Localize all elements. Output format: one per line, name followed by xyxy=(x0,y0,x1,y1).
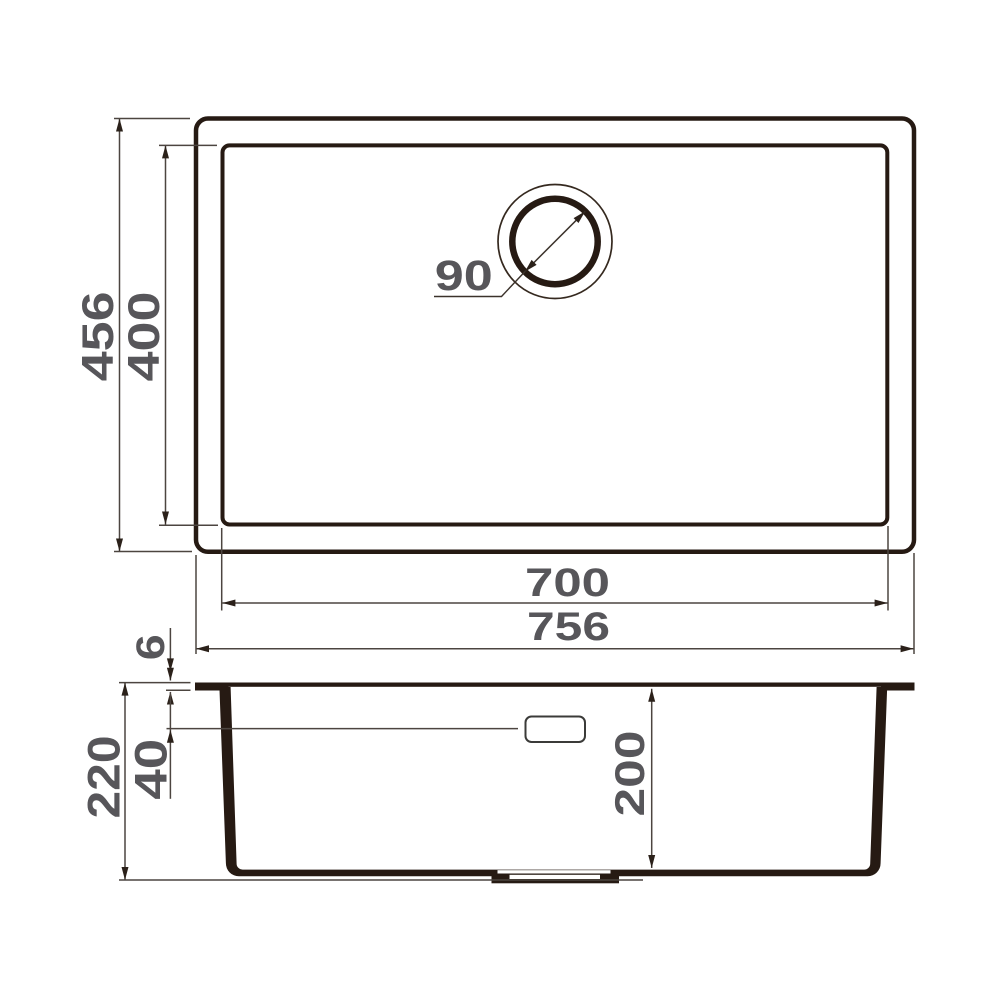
svg-text:220: 220 xyxy=(78,736,129,819)
svg-text:756: 756 xyxy=(527,605,610,649)
svg-text:700: 700 xyxy=(525,561,610,605)
svg-text:456: 456 xyxy=(74,291,123,381)
svg-text:200: 200 xyxy=(606,731,653,817)
svg-text:90: 90 xyxy=(435,252,493,300)
svg-text:40: 40 xyxy=(126,739,177,800)
svg-text:6: 6 xyxy=(129,634,173,660)
svg-text:400: 400 xyxy=(120,292,169,382)
